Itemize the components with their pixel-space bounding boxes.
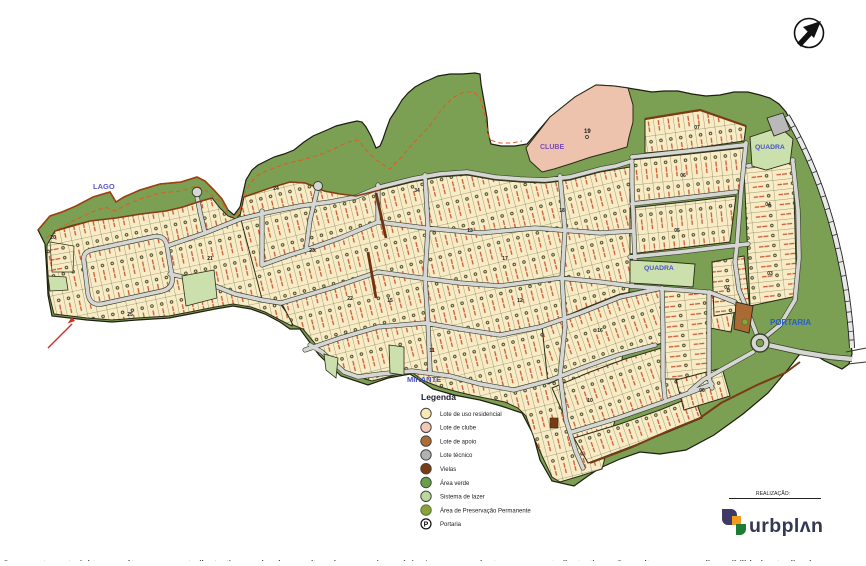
svg-text:10: 10 xyxy=(587,398,593,404)
svg-text:11: 11 xyxy=(429,348,435,354)
svg-text:MIRANTE: MIRANTE xyxy=(407,375,441,384)
svg-text:REALIZAÇÃO:: REALIZAÇÃO: xyxy=(756,490,790,497)
svg-text:12: 12 xyxy=(517,298,523,304)
svg-text:QUADRA: QUADRA xyxy=(644,265,674,272)
svg-text:19: 19 xyxy=(584,129,591,135)
svg-text:CLUBE: CLUBE xyxy=(540,144,564,151)
svg-text:15: 15 xyxy=(387,298,393,304)
svg-text:03: 03 xyxy=(767,271,773,277)
svg-text:20: 20 xyxy=(50,235,56,241)
svg-text:07: 07 xyxy=(694,125,700,131)
svg-text:Área verde: Área verde xyxy=(440,480,470,487)
svg-text:13: 13 xyxy=(467,228,473,234)
svg-text:18: 18 xyxy=(559,208,565,214)
svg-text:Lote de uso residencial: Lote de uso residencial xyxy=(440,412,502,418)
svg-text:05: 05 xyxy=(674,228,680,234)
svg-text:Lote de apoio: Lote de apoio xyxy=(440,439,477,445)
svg-text:Lote técnico: Lote técnico xyxy=(440,453,473,459)
svg-text:Lote de clube: Lote de clube xyxy=(440,426,477,432)
svg-text:QUADRA: QUADRA xyxy=(755,144,785,151)
svg-text:21: 21 xyxy=(207,256,213,262)
svg-text:Portaria: Portaria xyxy=(440,522,462,528)
svg-text:06: 06 xyxy=(699,388,705,394)
svg-text:P: P xyxy=(424,522,429,529)
svg-text:16: 16 xyxy=(597,328,603,334)
svg-text:LAGO: LAGO xyxy=(93,182,115,191)
svg-text:06: 06 xyxy=(680,173,686,179)
svg-text:22: 22 xyxy=(347,296,353,302)
svg-text:17: 17 xyxy=(502,256,508,262)
svg-text:34: 34 xyxy=(414,188,420,194)
svg-text:PORTARIA: PORTARIA xyxy=(770,318,811,327)
svg-text:urbplʌn: urbplʌn xyxy=(749,515,823,537)
svg-text:04: 04 xyxy=(765,202,771,208)
svg-text:Vielas: Vielas xyxy=(440,467,456,473)
svg-text:02: 02 xyxy=(724,285,730,291)
svg-text:Área de Preservação Permanente: Área de Preservação Permanente xyxy=(440,507,531,514)
svg-text:24: 24 xyxy=(273,186,279,192)
svg-text:23: 23 xyxy=(309,248,315,254)
svg-text:25: 25 xyxy=(127,312,133,318)
svg-text:Legenda: Legenda xyxy=(421,392,456,402)
svg-text:Sistema de lazer: Sistema de lazer xyxy=(440,495,485,501)
